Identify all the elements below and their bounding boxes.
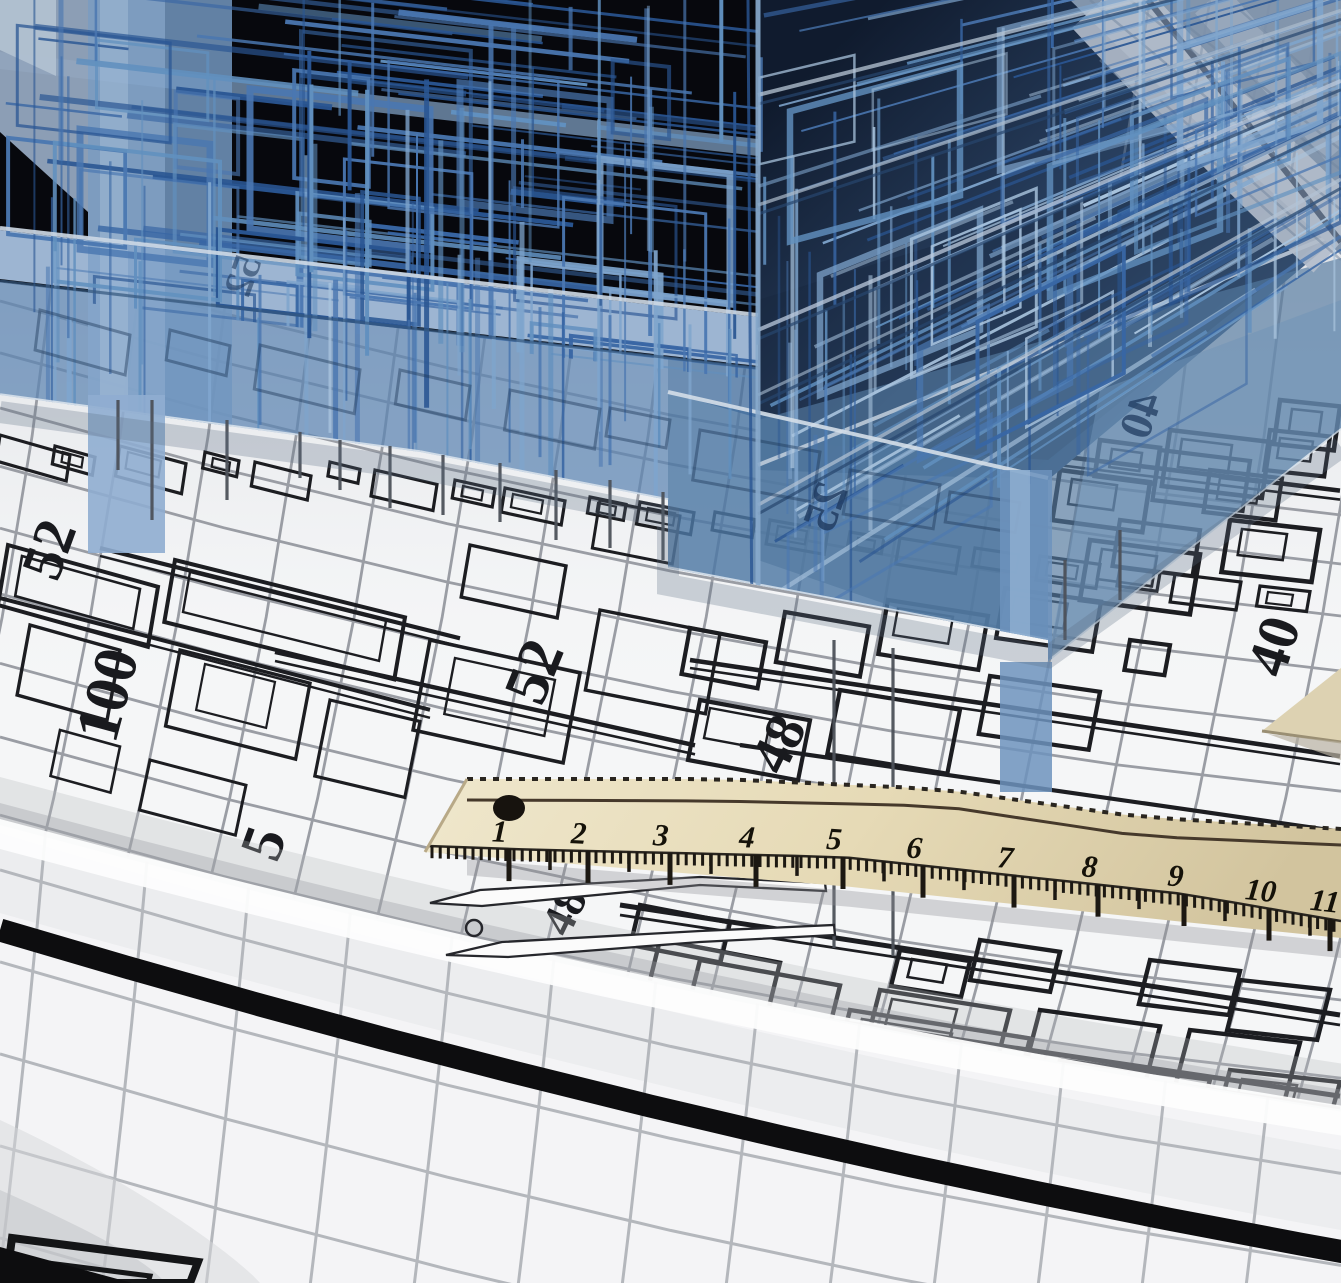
svg-text:5: 5 — [825, 821, 843, 857]
svg-text:10: 10 — [1244, 871, 1279, 909]
svg-text:1: 1 — [491, 813, 508, 849]
svg-text:4: 4 — [737, 819, 756, 855]
svg-text:11: 11 — [1308, 882, 1341, 920]
svg-text:3: 3 — [651, 817, 669, 853]
svg-text:2: 2 — [569, 815, 587, 851]
svg-text:6: 6 — [905, 829, 924, 865]
